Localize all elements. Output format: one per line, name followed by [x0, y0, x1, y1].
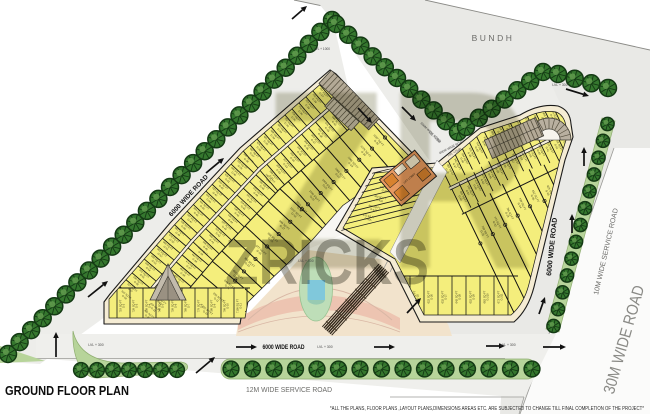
svg-text:749 SQ FT: 749 SQ FT	[157, 299, 161, 312]
svg-text:LVL + 300: LVL + 300	[500, 343, 515, 347]
svg-text:779 SQ FT: 779 SQ FT	[196, 299, 200, 312]
svg-text:*ALL THE PLANS, FLOOR PLANS ,L: *ALL THE PLANS, FLOOR PLANS ,LAYOUT PLAN…	[330, 406, 644, 412]
svg-text:729 SQ FT: 729 SQ FT	[131, 299, 135, 312]
svg-text:LVL + 300: LVL + 300	[88, 343, 103, 347]
svg-text:LVL + 300: LVL + 300	[317, 345, 332, 349]
svg-text:769 SQ FT: 769 SQ FT	[183, 299, 187, 312]
svg-text:7109 SQ FT: 7109 SQ FT	[235, 299, 239, 314]
svg-text:12M WIDE SERVICE ROAD: 12M WIDE SERVICE ROAD	[246, 387, 332, 394]
svg-text:LVL + 1000: LVL + 1000	[314, 47, 330, 51]
svg-text:LVL + 300: LVL + 300	[552, 83, 567, 87]
svg-text:739 SQ FT: 739 SQ FT	[144, 299, 148, 312]
svg-text:719 SQ FT: 719 SQ FT	[118, 299, 122, 312]
svg-text:BUNDH: BUNDH	[472, 33, 515, 43]
svg-text:789 SQ FT: 789 SQ FT	[209, 299, 213, 312]
svg-text:ZRICKS: ZRICKS	[225, 226, 429, 298]
svg-text:799 SQ FT: 799 SQ FT	[222, 299, 226, 312]
svg-text:LVL + 300: LVL + 300	[298, 259, 313, 263]
svg-text:GROUND FLOOR PLAN: GROUND FLOOR PLAN	[5, 383, 129, 398]
svg-text:759 SQ FT: 759 SQ FT	[170, 299, 174, 312]
svg-text:6000 WIDE ROAD: 6000 WIDE ROAD	[263, 344, 305, 351]
